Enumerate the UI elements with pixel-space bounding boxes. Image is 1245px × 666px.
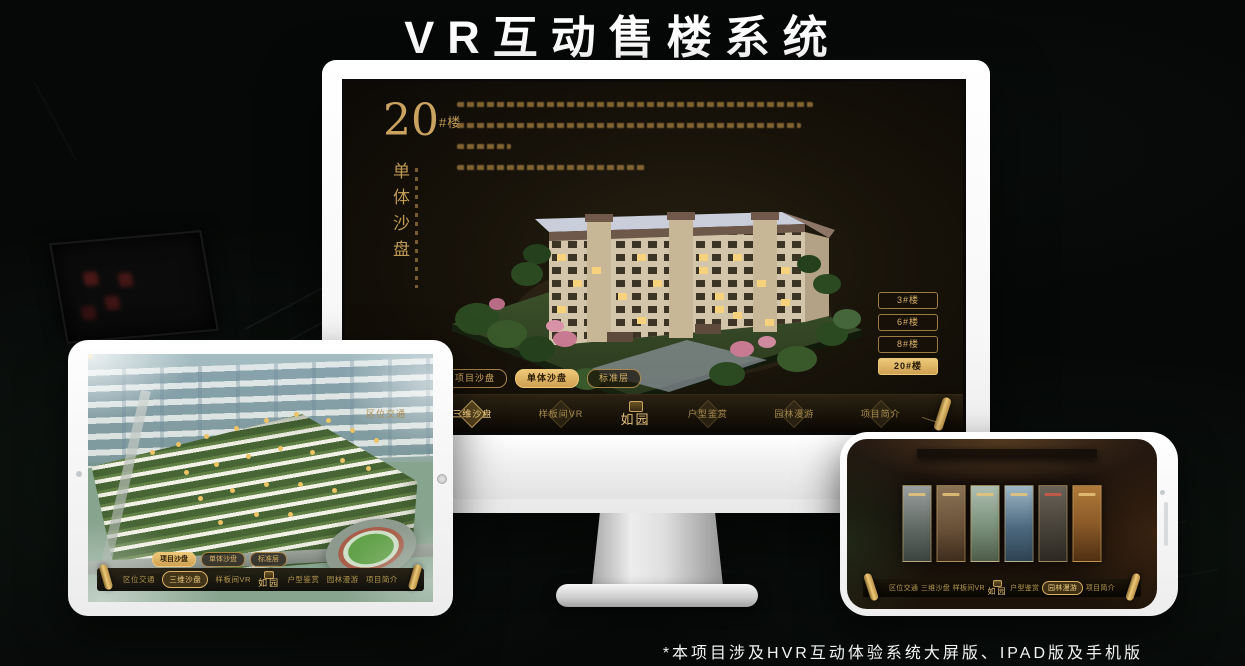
tablet-tab-project-sandbox[interactable]: 项目沙盘	[152, 552, 196, 567]
building-3d-model	[437, 134, 867, 399]
phone-nav-bar: 区位交通 三维沙盘 样板间VR 如园 户型鉴赏 园林漫游 项目简介	[863, 579, 1141, 597]
floor-button-20[interactable]: 20#楼	[878, 358, 938, 375]
floor-button-8[interactable]: 8#楼	[878, 336, 938, 353]
phone-mockup: 区位交通 三维沙盘 样板间VR 如园 户型鉴赏 园林漫游 项目简介	[840, 432, 1178, 616]
phone-nav-item-3d-sandbox[interactable]: 三维沙盘	[921, 583, 950, 593]
nav-item-garden-roam[interactable]: 园林漫游	[765, 402, 823, 425]
gallery-panel-courtyard[interactable]	[903, 485, 932, 562]
page-title: VR互动售楼系统	[0, 1, 1245, 66]
phone-nav-item-model-room-vr[interactable]: 样板间VR	[953, 583, 985, 593]
tablet-mockup: 项目沙盘 单体沙盘 标准层 区位交通 三维沙盘 样板间VR 如园 户型鉴赏 园林…	[68, 340, 453, 616]
phone-nav-item-garden-roam[interactable]: 园林漫游	[1042, 581, 1083, 595]
phone-brand-logo: 如园	[988, 580, 1008, 596]
phone-nav-item-location[interactable]: 区位交通	[889, 583, 918, 593]
description-line	[457, 102, 813, 107]
phone-nav-item-unit-gallery[interactable]: 户型鉴赏	[1010, 583, 1039, 593]
tablet-nav-item-unit-gallery[interactable]: 户型鉴赏	[287, 574, 319, 585]
gallery-panel-building[interactable]	[1005, 485, 1034, 562]
panel-caption	[1045, 493, 1062, 496]
floor-button-6[interactable]: 6#楼	[878, 314, 938, 331]
panel-caption	[977, 493, 994, 496]
ceiling-beam-illustration	[917, 449, 1097, 458]
tablet-brand-logo: 如园	[258, 571, 280, 589]
building-number-badges	[88, 354, 93, 359]
tablet-tab-standard-floor[interactable]: 标准层	[250, 552, 287, 567]
poster-background: VR互动售楼系统 20#楼 单体沙盘	[0, 0, 1245, 666]
tablet-nav-item-model-room-vr[interactable]: 样板间VR	[216, 574, 251, 585]
vertical-section-title: 单体沙盘	[387, 162, 412, 266]
phone-speaker-slot	[1164, 502, 1168, 546]
tab-standard-floor[interactable]: 标准层	[587, 369, 641, 388]
tablet-nav-item-project-intro[interactable]: 项目简介	[366, 574, 398, 585]
tablet-camera-icon	[76, 471, 82, 477]
gallery-panel-interior[interactable]	[937, 485, 966, 562]
monitor-stand-base	[556, 584, 758, 607]
vertical-title-ornament	[415, 168, 418, 288]
scene-gallery	[903, 485, 1102, 562]
tablet-sandbox-mode-tabs: 项目沙盘 单体沙盘 标准层	[152, 552, 287, 567]
panel-caption	[1079, 493, 1096, 496]
tablet-screen: 项目沙盘 单体沙盘 标准层 区位交通 三维沙盘 样板间VR 如园 户型鉴赏 园林…	[88, 354, 433, 602]
tablet-nav-item-location[interactable]: 区位交通	[123, 574, 155, 585]
nav-item-model-room-vr[interactable]: 样板间VR	[530, 402, 593, 425]
panel-caption	[1011, 493, 1028, 496]
tablet-nav-item-3d-sandbox[interactable]: 三维沙盘	[162, 571, 208, 588]
tablet-nav-bar: 区位交通 三维沙盘 样板间VR 如园 户型鉴赏 园林漫游 项目简介	[97, 568, 424, 591]
brand-emblem-icon	[629, 401, 643, 412]
floor-button-3[interactable]: 3#楼	[878, 292, 938, 309]
scroll-handle-icon[interactable]	[933, 396, 952, 431]
tablet-nav-item-garden-roam[interactable]: 园林漫游	[327, 574, 359, 585]
gallery-panel-lounge[interactable]	[1073, 485, 1102, 562]
sandbox-mode-tabs: 项目沙盘 单体沙盘 标准层	[443, 369, 641, 388]
tablet-tab-single-building-sandbox[interactable]: 单体沙盘	[201, 552, 245, 567]
floor-selector: 3#楼 6#楼 8#楼 20#楼	[878, 292, 938, 380]
footnote-text: *本项目涉及HVR互动体验系统大屏版、IPAD版及手机版	[663, 639, 1143, 663]
gallery-panel-garden[interactable]	[971, 485, 1000, 562]
brand-logo: 如园	[621, 401, 651, 427]
phone-screen: 区位交通 三维沙盘 样板间VR 如园 户型鉴赏 园林漫游 项目简介	[847, 439, 1157, 609]
phone-camera-icon	[1160, 490, 1165, 495]
nav-item-unit-gallery[interactable]: 户型鉴赏	[679, 402, 737, 425]
gallery-panel-landscape[interactable]	[1039, 485, 1068, 562]
brand-emblem-icon	[993, 580, 1002, 587]
tab-single-building-sandbox[interactable]: 单体沙盘	[515, 369, 579, 388]
monitor-stand-neck	[592, 513, 723, 586]
panel-caption	[909, 493, 926, 496]
description-line	[457, 123, 801, 128]
background-plaque	[49, 230, 219, 344]
phone-nav-item-project-intro[interactable]: 项目简介	[1086, 583, 1115, 593]
map-road-line	[33, 81, 77, 161]
tablet-home-button[interactable]	[437, 474, 447, 484]
brand-emblem-icon	[264, 571, 274, 579]
panel-caption	[943, 493, 960, 496]
nav-item-project-intro[interactable]: 项目简介	[852, 402, 910, 425]
